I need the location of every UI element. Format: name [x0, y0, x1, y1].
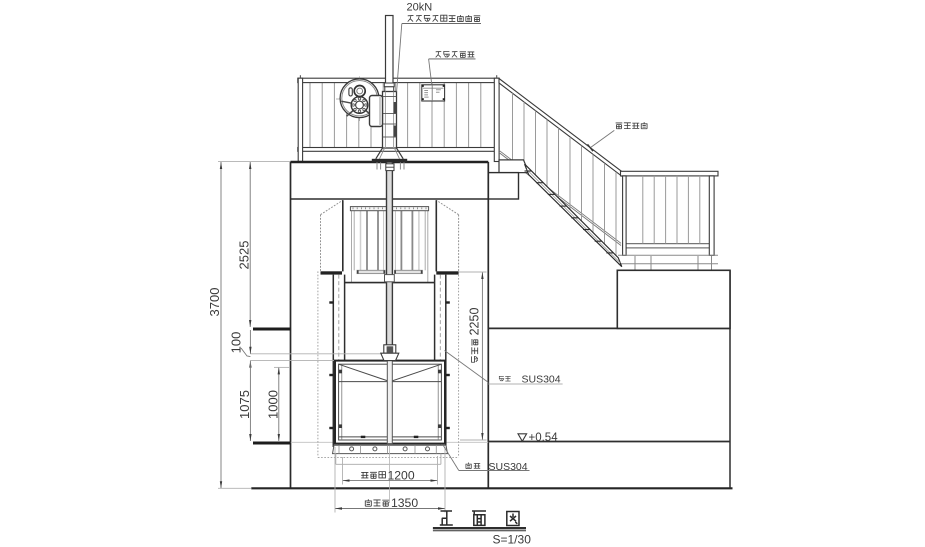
- svg-text:2250: 2250: [468, 308, 482, 336]
- svg-text:SUS304: SUS304: [522, 373, 561, 385]
- svg-text:S=1/30: S=1/30: [493, 533, 532, 547]
- svg-text:+0.54: +0.54: [529, 432, 559, 444]
- svg-text:1350: 1350: [391, 496, 418, 510]
- svg-text:1000: 1000: [265, 390, 280, 419]
- svg-text:SUS304: SUS304: [489, 461, 528, 473]
- svg-text:1200: 1200: [388, 468, 415, 482]
- svg-text:100: 100: [229, 332, 244, 354]
- svg-text:1075: 1075: [237, 390, 252, 419]
- svg-text:20kN: 20kN: [407, 2, 433, 14]
- svg-text:3700: 3700: [207, 288, 222, 317]
- svg-text:2525: 2525: [236, 241, 251, 270]
